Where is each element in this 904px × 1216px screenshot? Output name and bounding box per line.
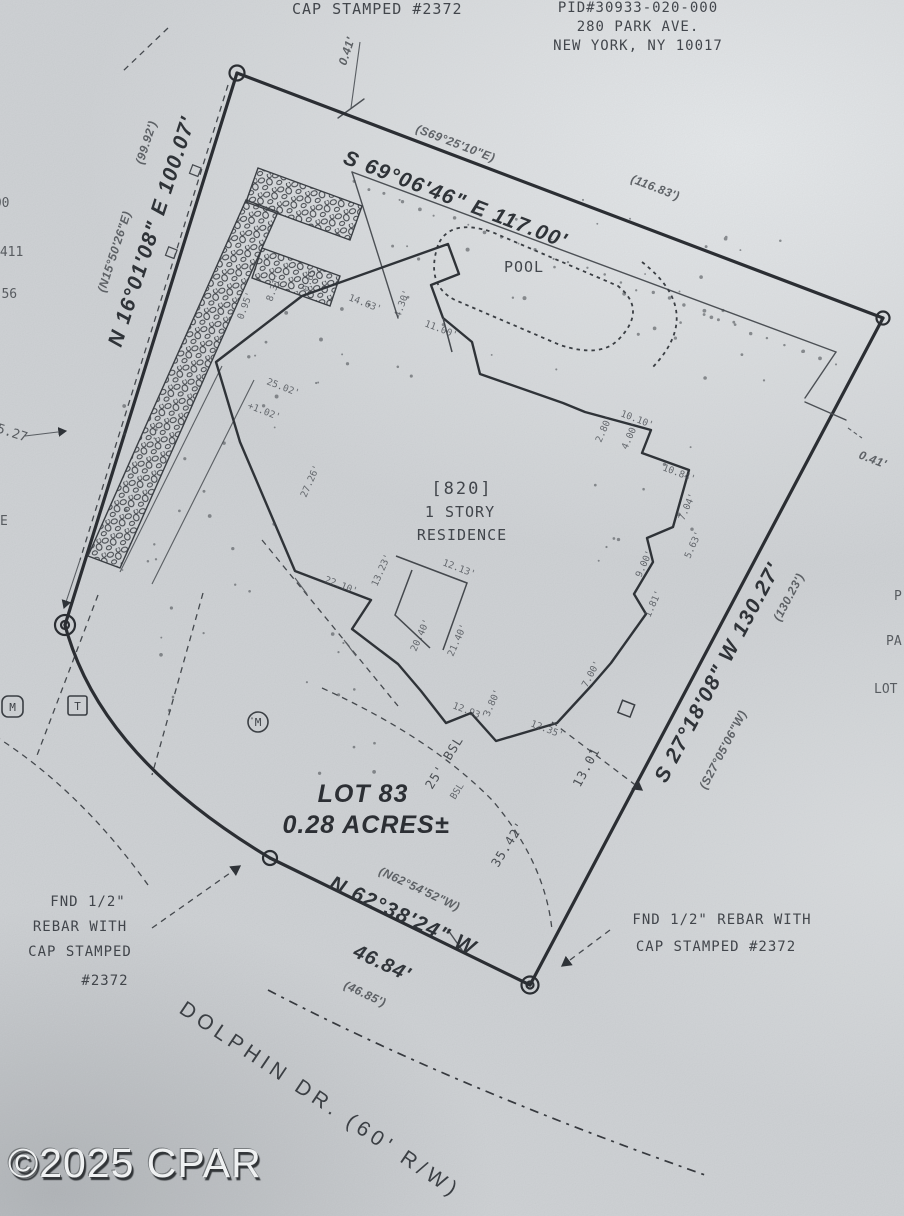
plat-drawing: M T M CAP STAMPED #2372 PID#30933-020-00… [0,0,904,1216]
edge-fragment-left-5: E [0,514,8,529]
survey-plat-page: M T M CAP STAMPED #2372 PID#30933-020-00… [0,0,904,1216]
monument-note-left-2: REBAR WITH [33,919,127,935]
pool-label: POOL [504,258,544,276]
house-desc-1: 1 STORY [425,503,495,521]
edge-fragment-right-1: P [894,589,902,604]
monument-note-left-4: #2372 [81,973,128,989]
edge-fragment-left-1: 000 [0,196,9,211]
edge-fragment-left-2: 2411 [0,245,23,260]
copyright-watermark: ©2025 CPAR [8,1140,262,1187]
telephone-symbol: T [74,700,81,713]
edge-fragment-right-2: PA [886,634,902,649]
water-meter-symbol: M [9,701,16,714]
lot-number: LOT 83 [318,780,409,808]
address-line1: 280 PARK AVE. [577,19,700,35]
pid-label: PID#30933-020-000 [558,0,718,16]
house-number: [820] [431,479,492,499]
address-line2: NEW YORK, NY 10017 [553,38,723,54]
lot-area: 0.28 ACRES± [283,811,450,839]
monument-note-right-2: CAP STAMPED #2372 [636,939,796,955]
meter-symbol-2: M [255,716,262,729]
monument-note-left-1: FND 1/2" [50,894,125,910]
house-desc-2: RESIDENCE [417,526,507,544]
monument-note-left-3: CAP STAMPED [28,944,132,960]
cap-stamped-label: CAP STAMPED #2372 [292,0,463,18]
edge-fragment-right-3: LOT [874,682,898,697]
paper-texture [0,0,904,1216]
monument-note-right-1: FND 1/2" REBAR WITH [632,912,811,928]
edge-fragment-left-3: 57-56 [0,287,17,302]
